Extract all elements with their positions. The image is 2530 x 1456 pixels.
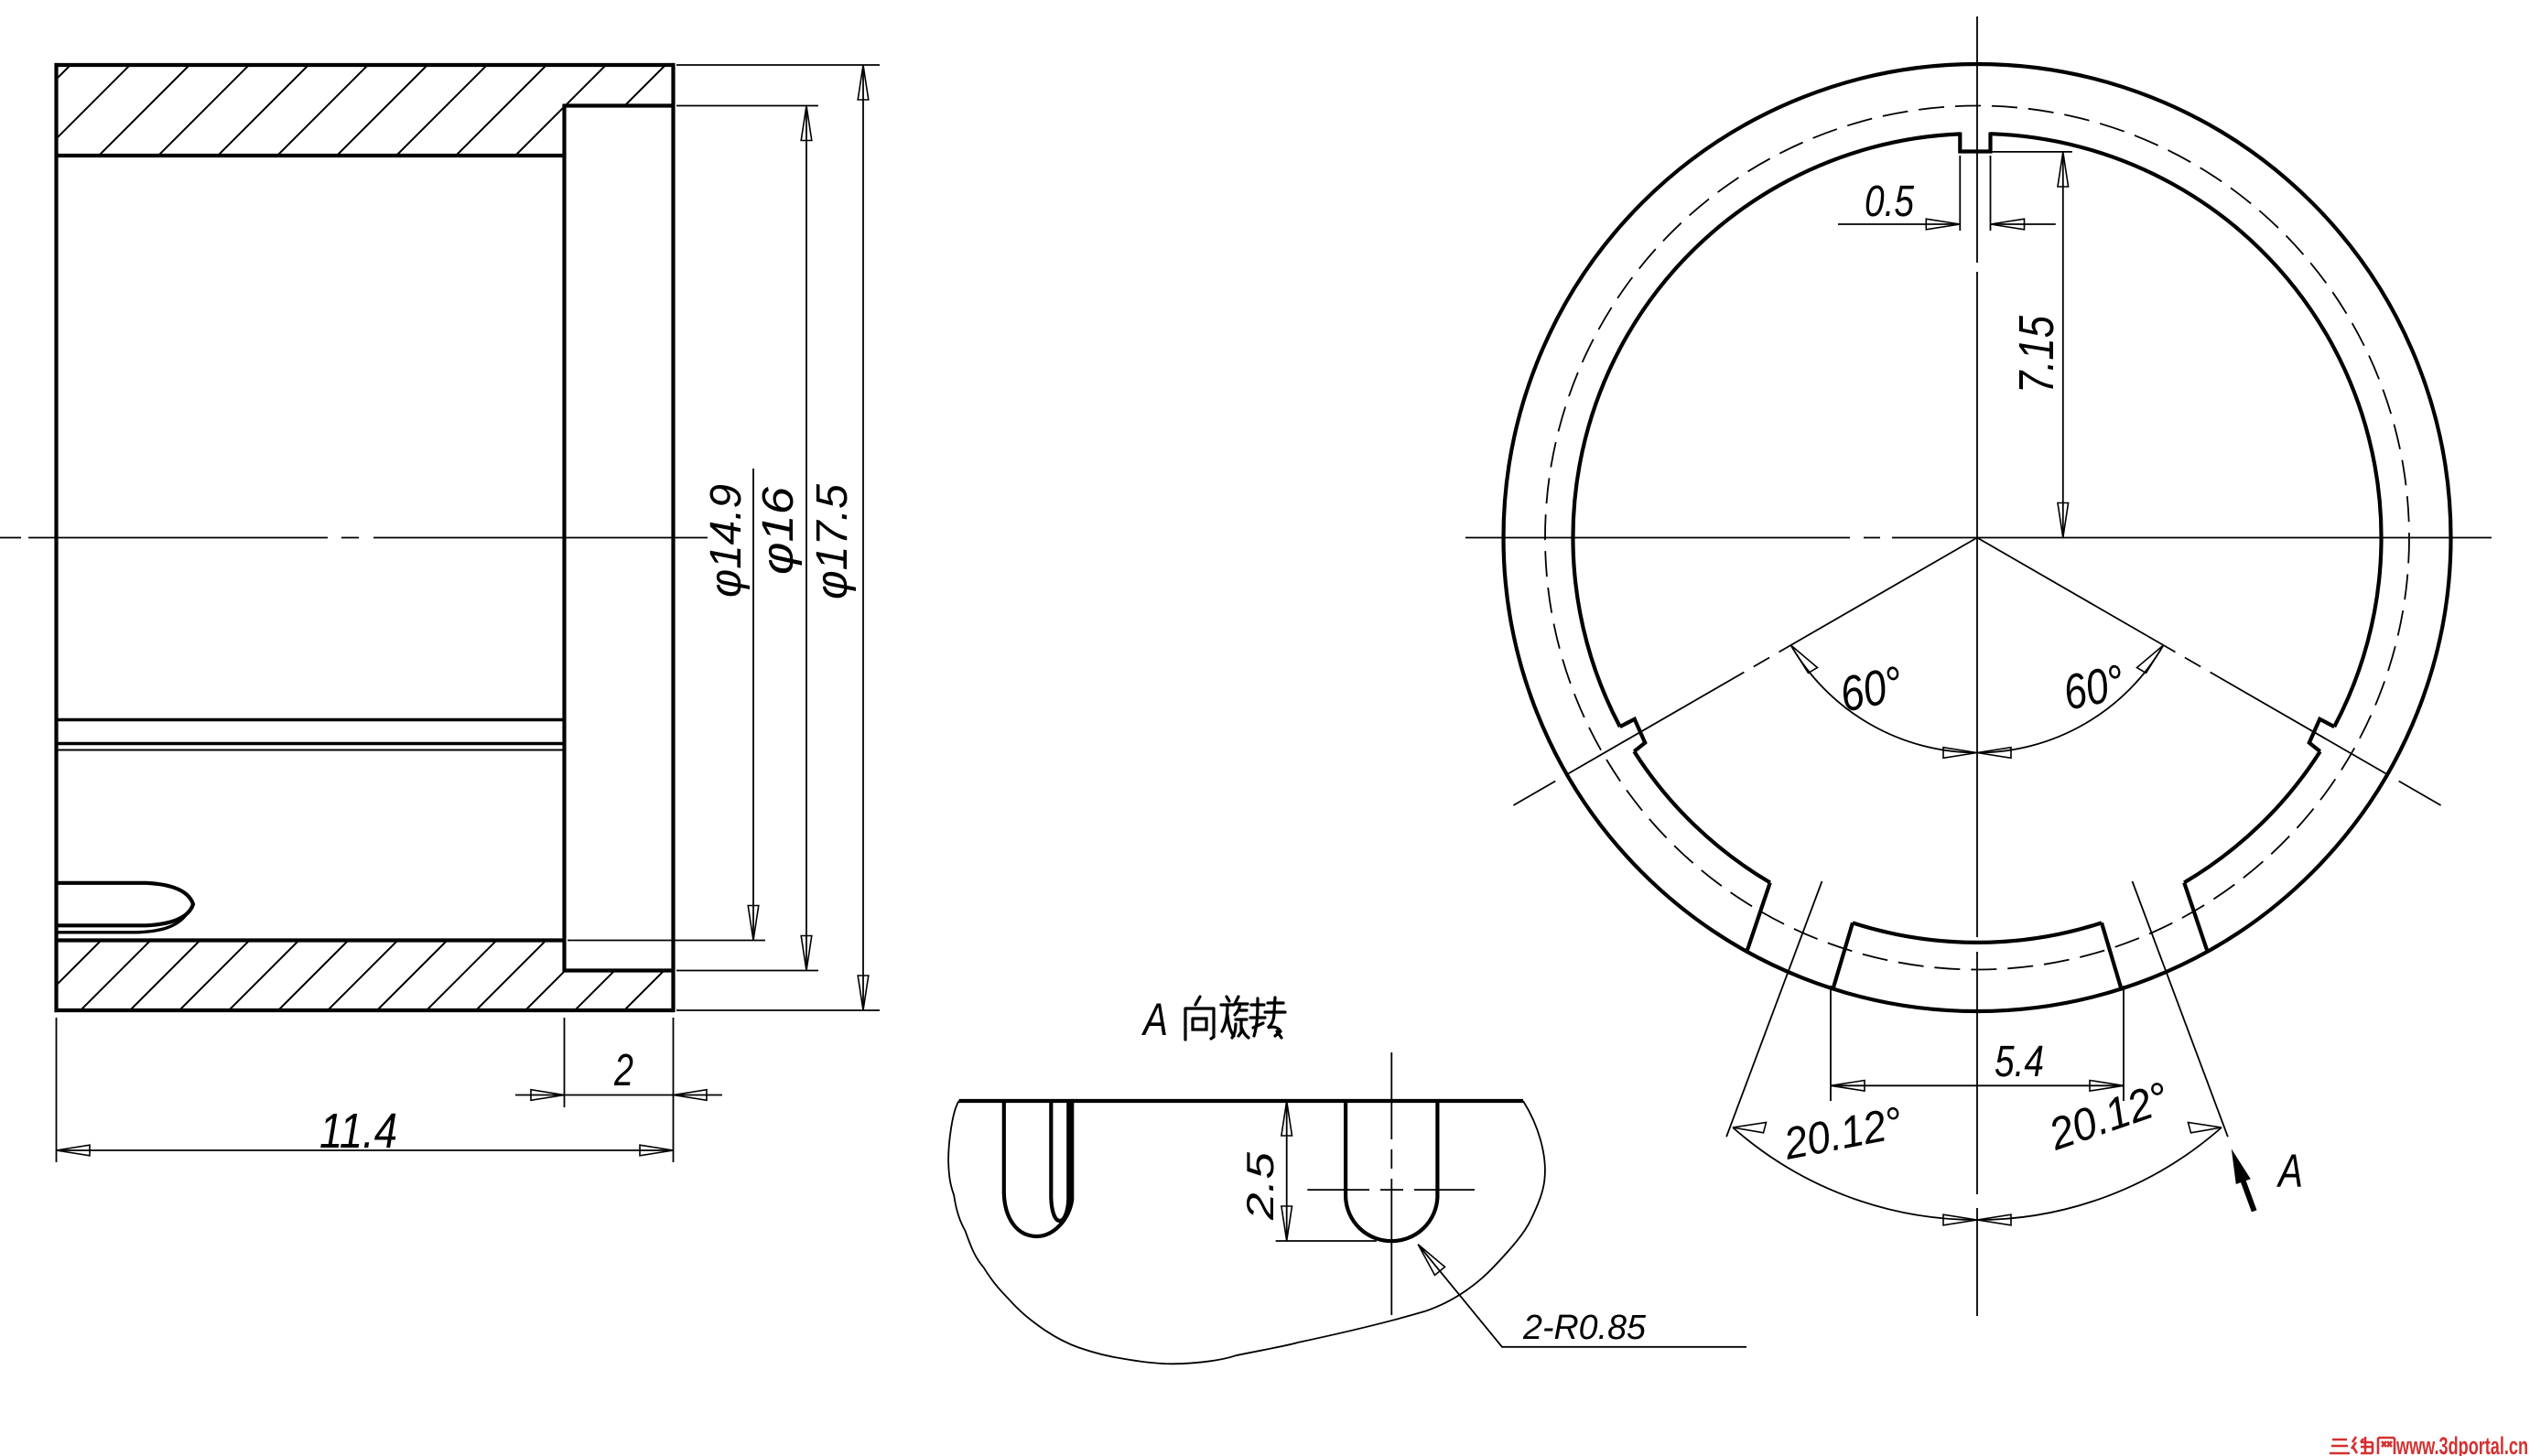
svg-text:11.4: 11.4 xyxy=(319,1104,397,1159)
svg-text:2: 2 xyxy=(613,1046,633,1095)
svg-text:A: A xyxy=(1141,994,1168,1045)
svg-text:φ14.9: φ14.9 xyxy=(702,484,751,598)
svg-text:2.5: 2.5 xyxy=(1238,1151,1281,1221)
svg-text:2-R0.85: 2-R0.85 xyxy=(1522,1309,1647,1347)
svg-text:www.3dportal.cn: www.3dportal.cn xyxy=(2395,1432,2528,1456)
svg-text:0.5: 0.5 xyxy=(1865,178,1914,226)
svg-text:60°: 60° xyxy=(2059,654,2129,720)
svg-text:A: A xyxy=(2276,1145,2303,1197)
svg-text:5.4: 5.4 xyxy=(1995,1038,2044,1086)
svg-text:φ16: φ16 xyxy=(754,487,803,575)
svg-text:7.15: 7.15 xyxy=(2009,315,2064,394)
svg-text:φ17.5: φ17.5 xyxy=(808,484,857,599)
svg-text:20.12°: 20.12° xyxy=(1779,1098,1907,1170)
svg-text:60°: 60° xyxy=(1835,656,1908,723)
